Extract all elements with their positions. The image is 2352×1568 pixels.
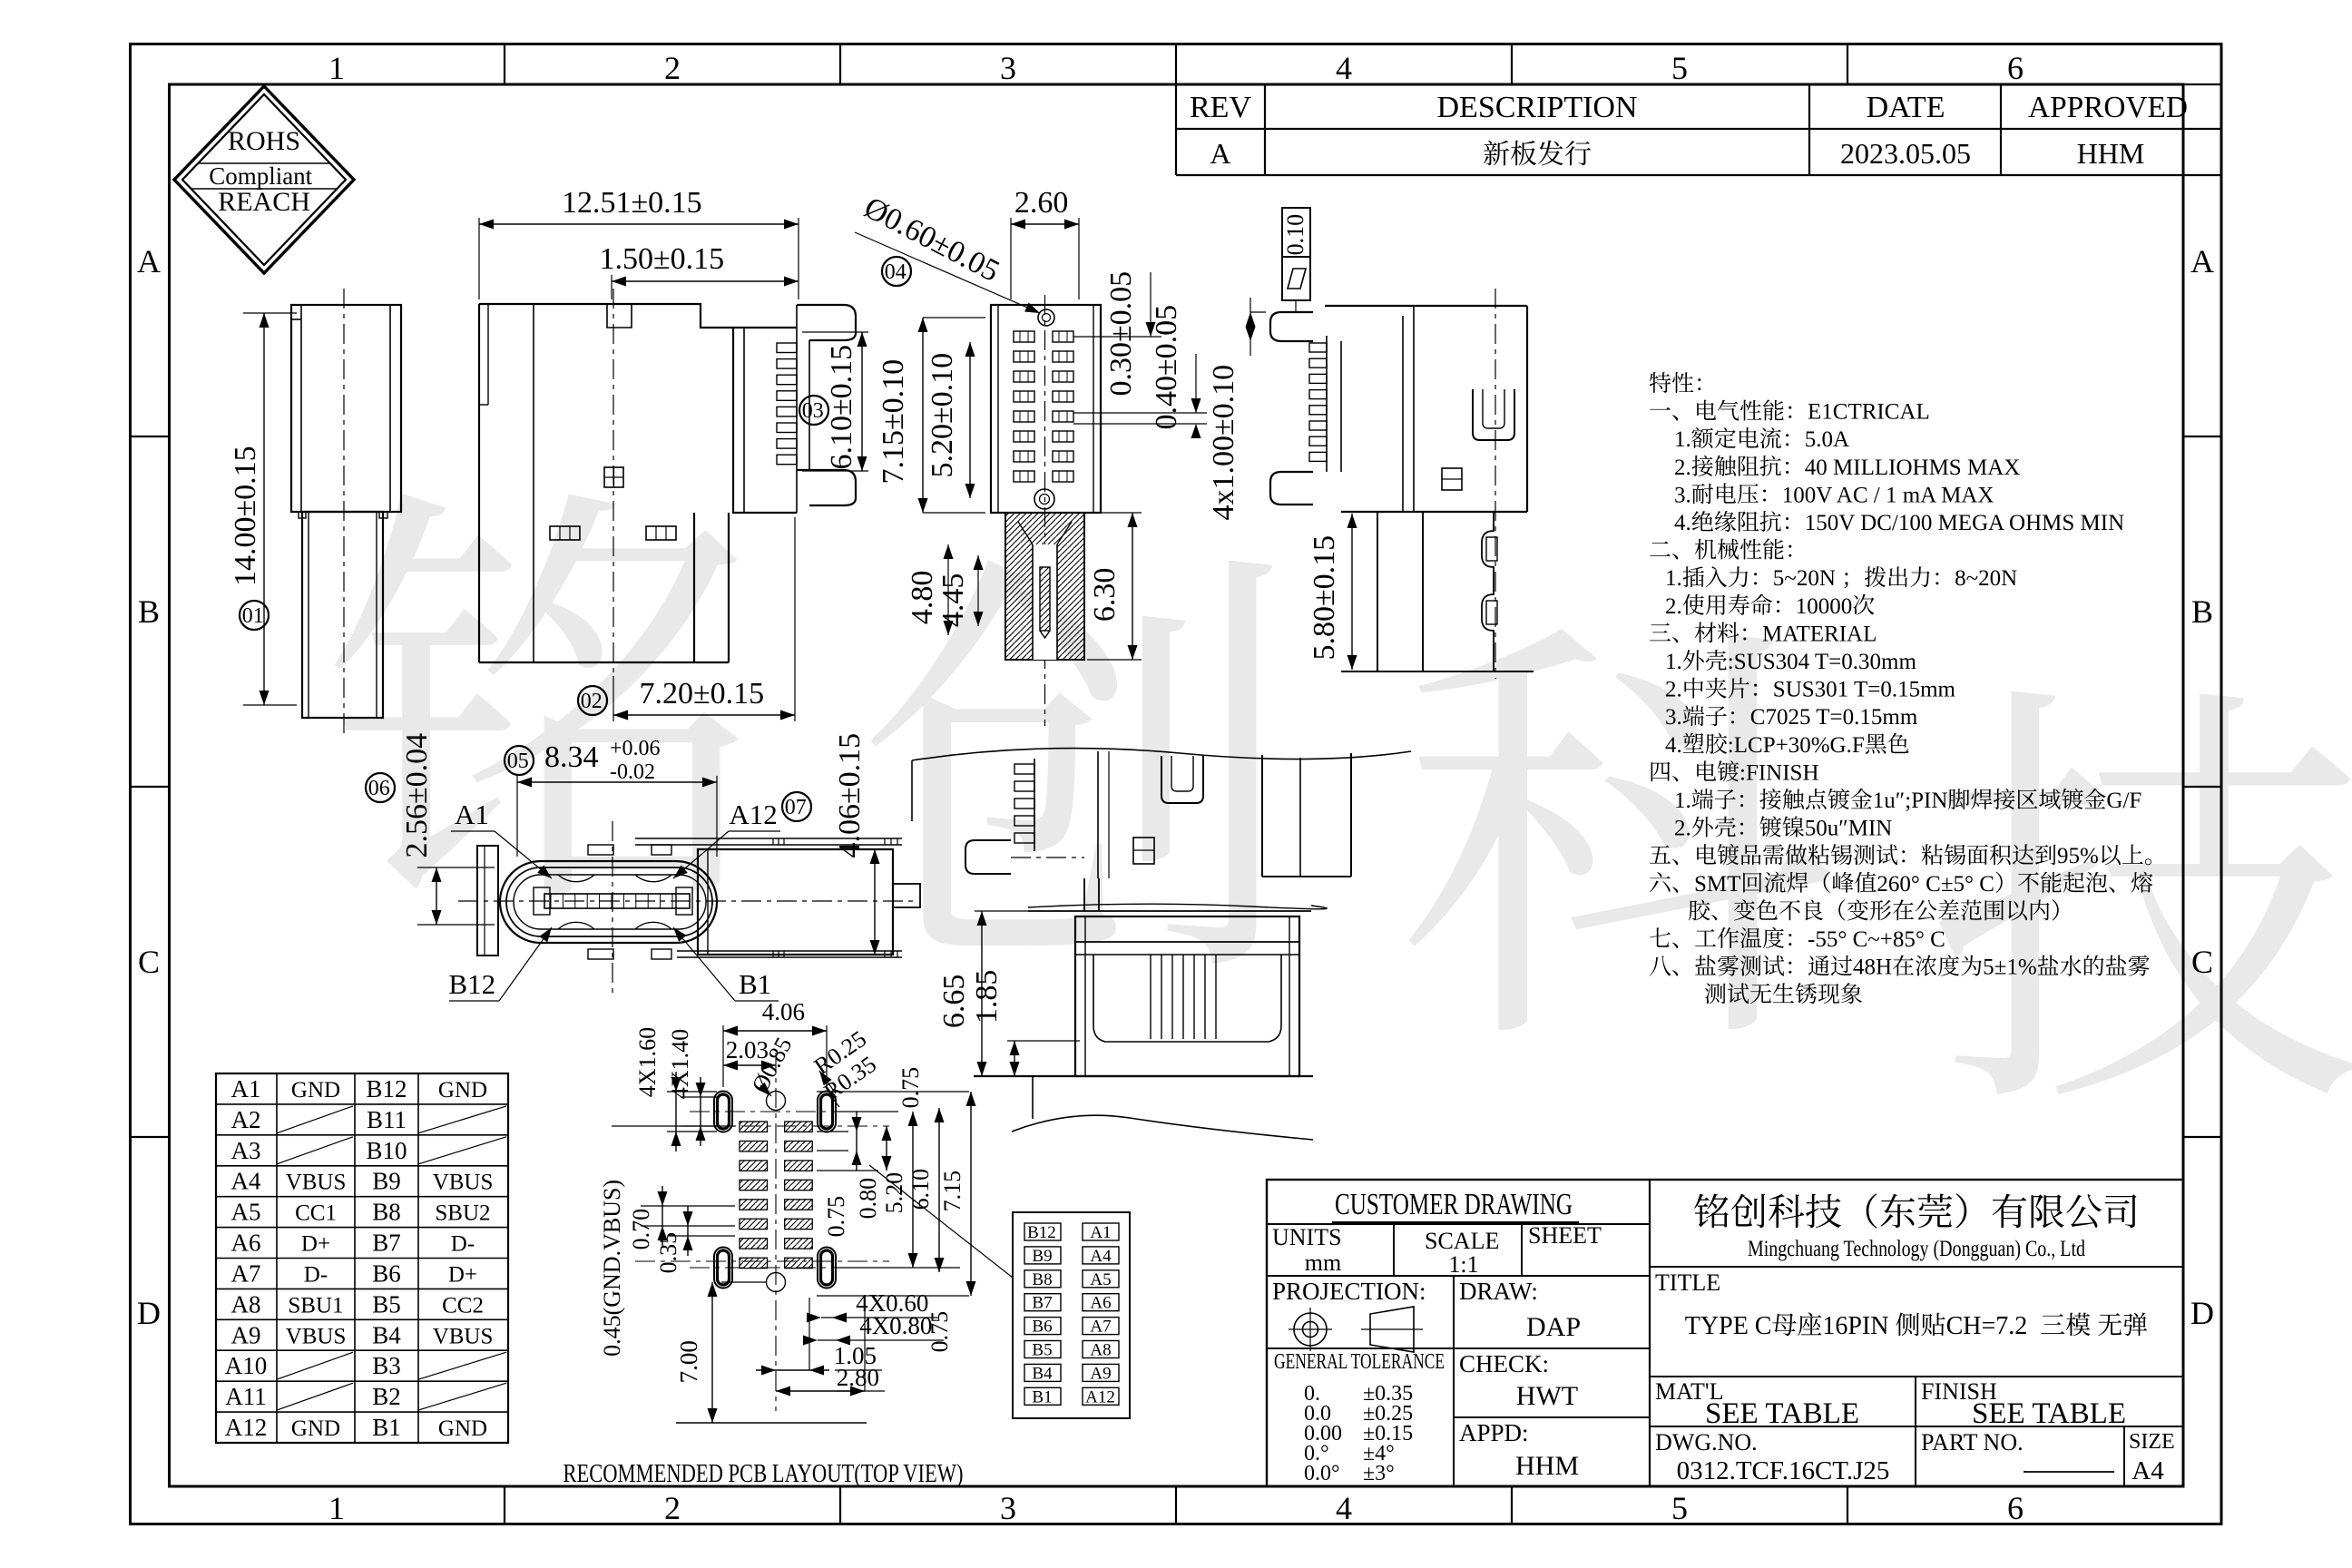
svg-text:B8: B8 bbox=[372, 1199, 401, 1226]
svg-text:0.75: 0.75 bbox=[926, 1311, 953, 1353]
svg-text:7.20±0.15: 7.20±0.15 bbox=[640, 677, 765, 710]
svg-text:B: B bbox=[138, 593, 160, 630]
svg-text:A1: A1 bbox=[231, 1075, 261, 1102]
svg-text:6: 6 bbox=[2007, 50, 2024, 86]
svg-text:B12: B12 bbox=[367, 1075, 407, 1102]
svg-text:4: 4 bbox=[1336, 1490, 1352, 1526]
svg-text:2: 2 bbox=[664, 1490, 681, 1526]
svg-text:MATERIAL: MATERIAL bbox=[1762, 622, 1877, 646]
svg-text:C7025 T=0.15mm: C7025 T=0.15mm bbox=[1750, 705, 1918, 730]
svg-text:D+: D+ bbox=[301, 1232, 330, 1257]
svg-text:VBUS: VBUS bbox=[433, 1324, 494, 1348]
svg-text:A: A bbox=[2190, 243, 2214, 279]
svg-text:0.75: 0.75 bbox=[823, 1196, 849, 1238]
svg-text:6.10±0.15: 6.10±0.15 bbox=[825, 345, 858, 470]
svg-text:SEE TABLE: SEE TABLE bbox=[1705, 1397, 1859, 1430]
svg-text:HWT: HWT bbox=[1516, 1381, 1578, 1411]
svg-text::FINISH: :FINISH bbox=[1739, 760, 1819, 785]
svg-text:B9: B9 bbox=[1032, 1247, 1052, 1266]
svg-text:±3°: ±3° bbox=[1363, 1462, 1395, 1485]
svg-text:APPD:: APPD: bbox=[1459, 1419, 1529, 1446]
svg-text:1.: 1. bbox=[1665, 566, 1682, 591]
svg-text:HHM: HHM bbox=[1515, 1451, 1579, 1481]
svg-text:mm: mm bbox=[1305, 1249, 1341, 1276]
svg-text:D-: D- bbox=[451, 1232, 475, 1257]
svg-text:VBUS: VBUS bbox=[433, 1171, 494, 1195]
svg-text:2.: 2. bbox=[1665, 678, 1682, 702]
svg-text:0.10: 0.10 bbox=[1282, 214, 1308, 256]
svg-text:A4: A4 bbox=[2131, 1456, 2164, 1485]
svg-text:SHEET: SHEET bbox=[1528, 1222, 1602, 1249]
svg-text:SIZE: SIZE bbox=[2129, 1430, 2175, 1454]
svg-text:A1: A1 bbox=[1090, 1223, 1111, 1242]
svg-text:14.00±0.15: 14.00±0.15 bbox=[229, 446, 262, 586]
svg-text:4: 4 bbox=[1336, 50, 1352, 86]
svg-text:A7: A7 bbox=[231, 1260, 261, 1288]
svg-text:6.30: 6.30 bbox=[1088, 568, 1122, 622]
svg-text:7.15±0.10: 7.15±0.10 bbox=[877, 359, 910, 485]
svg-text:D+: D+ bbox=[448, 1263, 477, 1288]
svg-text:2.60: 2.60 bbox=[1014, 186, 1069, 220]
svg-text:2.: 2. bbox=[1665, 594, 1682, 619]
svg-text:-0.02: -0.02 bbox=[610, 760, 655, 784]
svg-text:D: D bbox=[137, 1295, 161, 1331]
svg-text:4.06: 4.06 bbox=[762, 998, 805, 1025]
svg-text:03: 03 bbox=[802, 399, 824, 423]
svg-text:04: 04 bbox=[885, 260, 906, 284]
svg-text:A12: A12 bbox=[225, 1414, 267, 1441]
svg-text:5.20: 5.20 bbox=[881, 1172, 907, 1214]
svg-text:A8: A8 bbox=[231, 1290, 261, 1318]
svg-text:4X1.40: 4X1.40 bbox=[667, 1029, 693, 1099]
svg-text:B5: B5 bbox=[1032, 1341, 1052, 1360]
svg-text:REACH: REACH bbox=[218, 187, 310, 217]
svg-text:A1: A1 bbox=[455, 799, 489, 830]
svg-text:HHM: HHM bbox=[2077, 137, 2145, 170]
svg-text:7.00: 7.00 bbox=[675, 1340, 702, 1383]
svg-text:SUS301 T=0.15mm: SUS301 T=0.15mm bbox=[1773, 678, 1956, 702]
svg-text:A11: A11 bbox=[225, 1383, 267, 1410]
svg-text:GND: GND bbox=[291, 1416, 340, 1441]
svg-text:1: 1 bbox=[328, 1490, 345, 1526]
svg-text:4X1.60: 4X1.60 bbox=[634, 1027, 661, 1097]
svg-text:0.70: 0.70 bbox=[628, 1209, 654, 1250]
svg-text:G/F: G/F bbox=[2106, 789, 2141, 813]
svg-text:2.56±0.04: 2.56±0.04 bbox=[400, 733, 434, 858]
svg-text:48H: 48H bbox=[1853, 955, 1892, 980]
svg-text:SEE TABLE: SEE TABLE bbox=[1972, 1397, 2126, 1430]
svg-text:A5: A5 bbox=[1090, 1270, 1111, 1289]
svg-text:B4: B4 bbox=[372, 1321, 401, 1348]
svg-text:0.0°: 0.0° bbox=[1304, 1462, 1340, 1485]
svg-text:0.40±0.05: 0.40±0.05 bbox=[1150, 305, 1183, 430]
svg-text:GND: GND bbox=[438, 1416, 487, 1441]
svg-text:0.75: 0.75 bbox=[897, 1067, 924, 1109]
svg-text:CC2: CC2 bbox=[442, 1293, 484, 1318]
svg-text:TITLE: TITLE bbox=[1655, 1269, 1720, 1296]
svg-text:4X0.80: 4X0.80 bbox=[859, 1312, 932, 1339]
svg-text:1u″;PIN: 1u″;PIN bbox=[1873, 789, 1948, 813]
svg-text:A6: A6 bbox=[231, 1230, 261, 1257]
svg-text:SCALE: SCALE bbox=[1425, 1228, 1499, 1254]
svg-text:A9: A9 bbox=[231, 1321, 261, 1348]
svg-text:1.85: 1.85 bbox=[970, 970, 1004, 1024]
svg-text:CC1: CC1 bbox=[295, 1201, 337, 1226]
svg-text:ROHS: ROHS bbox=[228, 126, 300, 156]
svg-text:VBUS: VBUS bbox=[286, 1171, 347, 1195]
svg-text:1: 1 bbox=[328, 50, 345, 86]
svg-text:C: C bbox=[138, 944, 160, 980]
svg-text:4.45: 4.45 bbox=[936, 573, 970, 628]
svg-text:A7: A7 bbox=[1090, 1318, 1111, 1337]
svg-text:A5: A5 bbox=[231, 1199, 261, 1226]
svg-text:+0.06: +0.06 bbox=[610, 737, 661, 760]
svg-text:4.: 4. bbox=[1665, 733, 1682, 758]
svg-text:CHECK:: CHECK: bbox=[1459, 1350, 1549, 1377]
svg-text:A4: A4 bbox=[1090, 1247, 1112, 1266]
svg-text:16PIN: 16PIN bbox=[1822, 1312, 1888, 1340]
svg-text:3: 3 bbox=[1000, 1490, 1016, 1526]
svg-text:01: 01 bbox=[242, 604, 264, 628]
svg-text:A12: A12 bbox=[729, 799, 777, 830]
svg-text:B1: B1 bbox=[739, 968, 771, 1000]
svg-text:A: A bbox=[1210, 137, 1230, 170]
svg-text:CUSTOMER DRAWING: CUSTOMER DRAWING bbox=[1335, 1188, 1573, 1221]
svg-text:APPROVED: APPROVED bbox=[2028, 91, 2188, 124]
svg-text:2023.05.05: 2023.05.05 bbox=[1840, 137, 1971, 170]
svg-text:REV: REV bbox=[1190, 91, 1251, 124]
svg-text:A6: A6 bbox=[1090, 1294, 1111, 1313]
svg-text:B7: B7 bbox=[372, 1230, 401, 1257]
svg-text:95%: 95% bbox=[2057, 844, 2099, 868]
svg-text:02: 02 bbox=[581, 690, 603, 713]
svg-text:4.: 4. bbox=[1674, 511, 1691, 535]
svg-text:2: 2 bbox=[664, 50, 681, 86]
svg-text:B9: B9 bbox=[372, 1168, 401, 1195]
svg-text:VBUS: VBUS bbox=[286, 1324, 347, 1348]
svg-text:SBU2: SBU2 bbox=[435, 1201, 490, 1226]
svg-text:06: 06 bbox=[368, 777, 390, 800]
svg-text:B1: B1 bbox=[1032, 1387, 1052, 1406]
svg-text:1.: 1. bbox=[1665, 650, 1682, 674]
svg-text:50u″MIN: 50u″MIN bbox=[1805, 817, 1893, 841]
svg-text:8.34: 8.34 bbox=[544, 740, 599, 774]
svg-text:4.80: 4.80 bbox=[906, 571, 939, 625]
svg-text:5: 5 bbox=[1671, 1490, 1688, 1526]
svg-text:2.: 2. bbox=[1674, 817, 1691, 841]
svg-text:CH=7.2: CH=7.2 bbox=[1946, 1312, 2028, 1340]
svg-text:A12: A12 bbox=[1085, 1387, 1115, 1406]
svg-text:B3: B3 bbox=[372, 1352, 401, 1379]
svg-text:5: 5 bbox=[1671, 50, 1688, 86]
svg-text:B: B bbox=[2191, 593, 2213, 630]
svg-text:GND: GND bbox=[438, 1078, 487, 1102]
svg-text:260° C±5° C: 260° C±5° C bbox=[1877, 872, 1994, 897]
svg-text:PART NO.: PART NO. bbox=[1921, 1429, 2024, 1455]
svg-text:100V AC / 1 mA MAX: 100V AC / 1 mA MAX bbox=[1782, 483, 1994, 507]
svg-text:SBU1: SBU1 bbox=[288, 1293, 343, 1318]
svg-text:A10: A10 bbox=[225, 1352, 267, 1379]
svg-text:UNITS: UNITS bbox=[1272, 1224, 1342, 1250]
svg-text:B5: B5 bbox=[372, 1290, 401, 1318]
svg-text:4x1.00±0.10: 4x1.00±0.10 bbox=[1207, 365, 1240, 521]
svg-text:5±1%: 5±1% bbox=[1983, 955, 2037, 980]
svg-text:12.51±0.15: 12.51±0.15 bbox=[562, 186, 702, 220]
svg-text:0.30±0.05: 0.30±0.05 bbox=[1104, 271, 1138, 397]
svg-text:5~20N: 5~20N bbox=[1773, 566, 1836, 591]
svg-text:B6: B6 bbox=[372, 1260, 401, 1288]
svg-text:5.20±0.10: 5.20±0.10 bbox=[926, 353, 959, 478]
svg-text:0.45(GND.VBUS): 0.45(GND.VBUS) bbox=[599, 1180, 625, 1357]
svg-text:D-: D- bbox=[304, 1263, 328, 1288]
svg-text:3.: 3. bbox=[1674, 483, 1691, 507]
svg-text:PROJECTION:: PROJECTION: bbox=[1272, 1278, 1426, 1305]
svg-text:1.: 1. bbox=[1674, 427, 1691, 452]
svg-text:Compliant: Compliant bbox=[209, 162, 312, 190]
svg-text:10000: 10000 bbox=[1796, 594, 1853, 619]
svg-text:2.80: 2.80 bbox=[837, 1364, 879, 1391]
svg-text:05: 05 bbox=[507, 750, 529, 773]
svg-text:C: C bbox=[2191, 944, 2213, 980]
svg-text:7.15: 7.15 bbox=[939, 1171, 965, 1212]
svg-text:A3: A3 bbox=[231, 1137, 261, 1164]
svg-text:DWG.NO.: DWG.NO. bbox=[1655, 1429, 1758, 1455]
svg-text:40 MILLIOHMS MAX: 40 MILLIOHMS MAX bbox=[1805, 456, 2021, 480]
svg-text:A9: A9 bbox=[1090, 1364, 1111, 1383]
svg-text:A8: A8 bbox=[1090, 1341, 1111, 1360]
svg-text:E1CTRICAL: E1CTRICAL bbox=[1808, 400, 1930, 425]
svg-text:Mingchuang Technology (Donggua: Mingchuang Technology (Dongguan) Co., Lt… bbox=[1748, 1237, 2085, 1261]
svg-text:6.65: 6.65 bbox=[937, 975, 971, 1029]
svg-text:1:1: 1:1 bbox=[1448, 1251, 1478, 1278]
svg-text::SUS304 T=0.30mm: :SUS304 T=0.30mm bbox=[1728, 650, 1917, 674]
svg-text:150V DC/100 MEGA OHMS MIN: 150V DC/100 MEGA OHMS MIN bbox=[1805, 511, 2124, 535]
svg-text:5.0A: 5.0A bbox=[1805, 427, 1849, 452]
svg-text:0312.TCF.16CT.J25: 0312.TCF.16CT.J25 bbox=[1677, 1456, 1890, 1485]
svg-text:B7: B7 bbox=[1032, 1294, 1052, 1313]
svg-text:SMT: SMT bbox=[1694, 872, 1740, 897]
svg-text:B12: B12 bbox=[1027, 1223, 1056, 1242]
svg-text:GND: GND bbox=[291, 1078, 340, 1102]
svg-text:RECOMMENDED PCB LAYOUT(TOP VIE: RECOMMENDED PCB LAYOUT(TOP VIEW) bbox=[563, 1460, 964, 1488]
svg-text:B1: B1 bbox=[372, 1414, 401, 1441]
svg-text:0.35: 0.35 bbox=[655, 1232, 681, 1274]
svg-text:3: 3 bbox=[1000, 50, 1016, 86]
svg-text:3.: 3. bbox=[1665, 705, 1682, 730]
svg-text:B11: B11 bbox=[367, 1106, 407, 1133]
svg-text::LCP+30%G.F: :LCP+30%G.F bbox=[1728, 733, 1865, 758]
svg-text:DATE: DATE bbox=[1867, 91, 1945, 124]
svg-text:B2: B2 bbox=[372, 1383, 401, 1410]
svg-text:5.80±0.15: 5.80±0.15 bbox=[1308, 535, 1341, 661]
svg-text:A: A bbox=[137, 243, 161, 279]
svg-text:B10: B10 bbox=[367, 1137, 407, 1164]
svg-text:6: 6 bbox=[2007, 1490, 2024, 1526]
svg-text:DRAW:: DRAW: bbox=[1459, 1278, 1538, 1305]
svg-text:6.10: 6.10 bbox=[907, 1169, 934, 1210]
svg-text:B8: B8 bbox=[1032, 1270, 1052, 1289]
svg-text:1.50±0.15: 1.50±0.15 bbox=[600, 242, 725, 276]
svg-text:TYPE C: TYPE C bbox=[1685, 1312, 1772, 1340]
svg-text:DAP: DAP bbox=[1526, 1312, 1581, 1342]
svg-text:1.: 1. bbox=[1674, 789, 1691, 813]
svg-text:B4: B4 bbox=[1032, 1364, 1053, 1383]
svg-text:B6: B6 bbox=[1032, 1318, 1052, 1337]
svg-text:A4: A4 bbox=[231, 1168, 261, 1195]
svg-text:A2: A2 bbox=[231, 1106, 261, 1133]
svg-text:8~20N: 8~20N bbox=[1955, 566, 2017, 591]
svg-text:0.80: 0.80 bbox=[855, 1178, 881, 1220]
svg-text:B12: B12 bbox=[448, 968, 495, 1000]
svg-text:07: 07 bbox=[785, 796, 807, 819]
svg-text:4.06±0.15: 4.06±0.15 bbox=[833, 733, 867, 858]
svg-text:GENERAL TOLERANCE: GENERAL TOLERANCE bbox=[1274, 1350, 1445, 1374]
svg-text:-55° C~+85° C: -55° C~+85° C bbox=[1808, 927, 1945, 952]
svg-text:2.: 2. bbox=[1674, 456, 1691, 480]
svg-text:DESCRIPTION: DESCRIPTION bbox=[1437, 91, 1638, 124]
svg-text:D: D bbox=[2190, 1295, 2214, 1331]
